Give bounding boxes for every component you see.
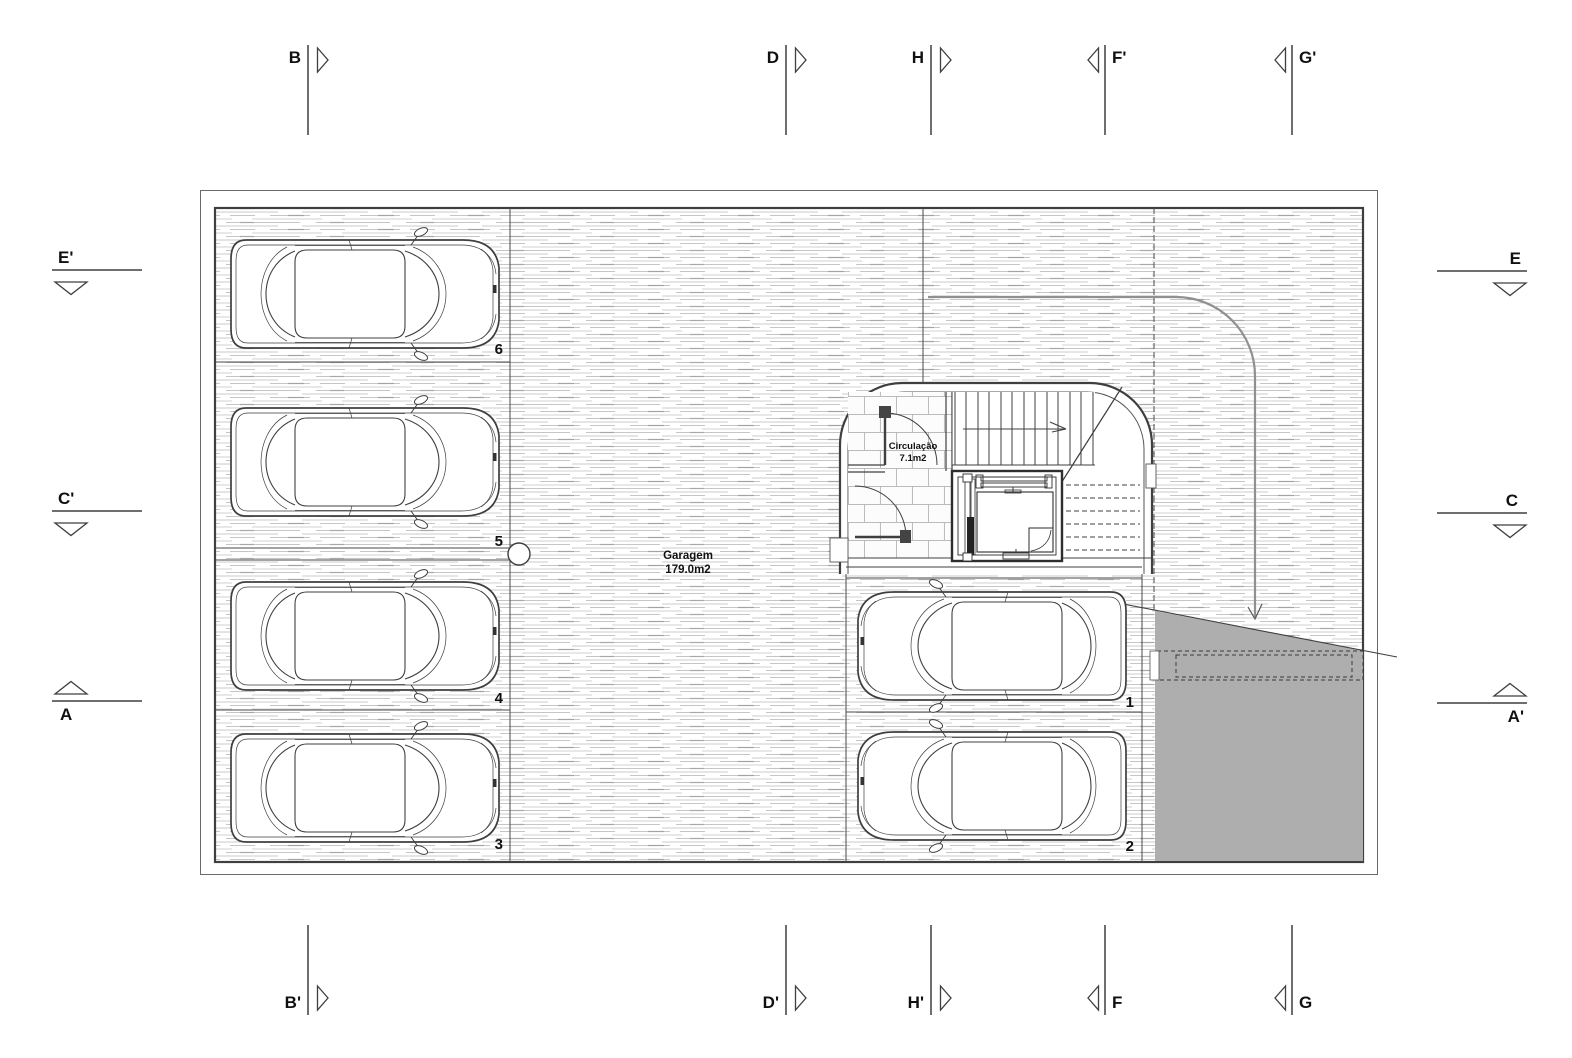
garage-room-name: Garagem bbox=[663, 550, 713, 562]
section-label: C' bbox=[58, 489, 74, 509]
section-label: D bbox=[767, 48, 779, 68]
elevator bbox=[952, 471, 1062, 561]
section-arrow-icon bbox=[316, 46, 330, 74]
section-label: F' bbox=[1112, 48, 1126, 68]
space-number: 3 bbox=[495, 836, 503, 853]
section-arrow-icon bbox=[1492, 281, 1528, 298]
section-label: A' bbox=[1508, 707, 1524, 727]
space-number: 5 bbox=[495, 533, 503, 550]
car-top-view bbox=[858, 578, 1126, 714]
section-arrow-icon bbox=[316, 984, 330, 1012]
section-arrow-icon bbox=[1273, 46, 1287, 74]
section-arrow-icon bbox=[939, 984, 953, 1012]
section-label: E' bbox=[58, 248, 73, 268]
section-label: H' bbox=[908, 993, 924, 1013]
section-arrow-icon bbox=[939, 46, 953, 74]
section-label: C bbox=[1506, 491, 1518, 511]
section-arrow-icon bbox=[1273, 984, 1287, 1012]
wall-step bbox=[830, 538, 848, 562]
section-label: D' bbox=[763, 993, 779, 1013]
car-top-view bbox=[231, 226, 499, 362]
garage-plan-drawing: 6 5 4 3 1 2 Garagem 179.0m2 Circulação 7… bbox=[0, 0, 1572, 1058]
section-arrow-icon bbox=[1086, 984, 1100, 1012]
section-label: G' bbox=[1299, 48, 1316, 68]
ramp-area bbox=[1150, 611, 1363, 861]
section-label: B bbox=[289, 48, 301, 68]
ramp-wall-notch bbox=[1150, 651, 1159, 680]
section-label: B' bbox=[285, 993, 301, 1013]
stair-elevator-core bbox=[830, 383, 1156, 574]
section-arrow-icon bbox=[794, 984, 808, 1012]
section-label: F bbox=[1112, 993, 1122, 1013]
section-arrow-icon bbox=[53, 280, 89, 297]
car-top-view bbox=[231, 720, 499, 856]
space-number: 2 bbox=[1126, 838, 1134, 855]
car-top-view bbox=[231, 568, 499, 704]
section-arrow-icon bbox=[53, 679, 89, 696]
floor-plan-canvas: 6 5 4 3 1 2 Garagem 179.0m2 Circulação 7… bbox=[0, 0, 1572, 1058]
section-label: G bbox=[1299, 993, 1312, 1013]
section-label: E bbox=[1510, 249, 1521, 269]
garage-room-area: 179.0m2 bbox=[665, 564, 710, 576]
section-label: H bbox=[912, 48, 924, 68]
space-number: 4 bbox=[495, 690, 504, 707]
wall-step bbox=[1146, 464, 1156, 488]
section-arrow-icon bbox=[1086, 46, 1100, 74]
section-arrow-icon bbox=[1492, 681, 1528, 698]
circulation-room-area: 7.1m2 bbox=[900, 453, 927, 464]
section-arrow-icon bbox=[794, 46, 808, 74]
car-top-view bbox=[858, 718, 1126, 854]
column-marker bbox=[508, 543, 530, 565]
space-number: 1 bbox=[1126, 694, 1134, 711]
staircase bbox=[952, 392, 1095, 465]
circulation-room-name: Circulação bbox=[889, 441, 938, 452]
section-arrow-icon bbox=[1492, 523, 1528, 540]
section-label: A bbox=[60, 705, 72, 725]
section-arrow-icon bbox=[53, 521, 89, 538]
space-number: 6 bbox=[495, 341, 503, 358]
car-top-view bbox=[231, 394, 499, 530]
